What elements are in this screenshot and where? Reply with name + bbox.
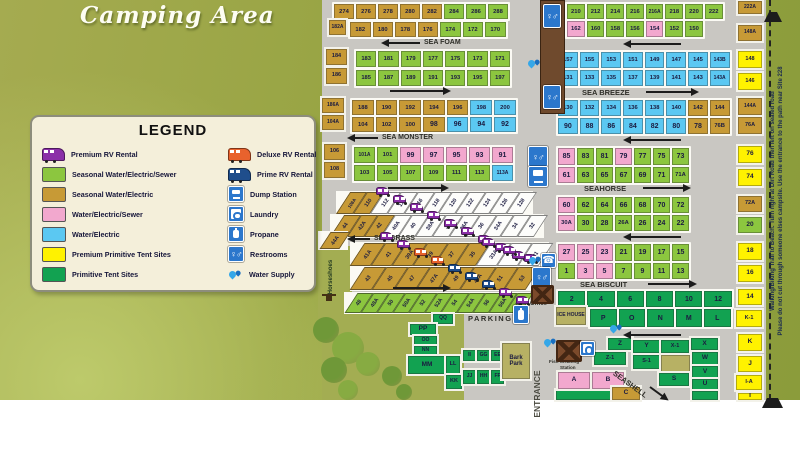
drops-icon [528,252,539,265]
legend-item: Laundry [228,204,312,224]
site-189: 189 [401,70,421,86]
legend-item: Seasonal Water/Electric/Sewer [42,164,212,184]
legend-item-label: Prime RV Rental [257,170,313,179]
rv-icon [410,203,423,211]
site-type-swatch [42,187,66,202]
site-160: 160 [587,21,605,37]
site-181: 181 [378,51,398,67]
site-113A: 113A [492,165,513,181]
site-216A: 216A [646,4,664,19]
site-278: 278 [378,4,398,19]
site-142: 142 [688,100,708,116]
site-156: 156 [626,21,644,37]
drops-icon [527,55,541,71]
site-s-1: S-1 [633,355,660,369]
site-77: 77 [634,148,651,165]
site-274: 274 [334,4,354,19]
campground-map: Camping Area LEGEND Premium RV RentalSea… [0,0,800,400]
site-132: 132 [580,100,600,116]
site-22: 22 [672,215,689,231]
tree-icon [382,366,402,386]
restrooms-icon: ♀♂ [543,4,561,28]
site-93: 93 [469,147,490,163]
trail-note: Walking/Biking Trail to Beach. Turn righ… [769,33,785,369]
trailarrow-icon [764,2,782,22]
legend-item: Premium RV Rental [42,144,212,164]
legend-item: ♀♂Restrooms [228,244,312,264]
rv-icon [482,238,495,246]
site-193: 193 [445,70,465,86]
site-82: 82 [645,118,665,134]
direction-arrow [643,187,688,189]
site-198: 198 [470,100,492,115]
site-183: 183 [356,51,376,67]
legend-item-label: Water/Electric/Sewer [72,210,143,219]
site-nn: NN [414,346,437,355]
site-68: 68 [634,197,651,213]
site-101: 101 [377,147,398,163]
drops-icon [609,320,621,334]
direction-arrow [626,43,681,45]
legend-item: Seasonal Water/Electric [42,184,212,204]
site-block [692,391,718,400]
site-row: 131133135137139141143143A [556,68,732,88]
trail-note-line: Walking/Biking Trail to Beach. Turn righ… [769,33,777,369]
site-61: 61 [558,167,575,183]
site-v: V [692,366,718,378]
site-z-1: Z-1 [594,352,626,365]
site-103: 103 [354,165,375,181]
laundry-icon [580,341,595,356]
site-76a: 76A [738,117,762,134]
site-13: 13 [672,263,689,279]
site-11: 11 [653,263,670,279]
site-M: M [676,309,703,327]
rv-icon [376,187,389,195]
office-icon [531,285,554,304]
legend-title: LEGEND [32,122,314,139]
site-185: 185 [356,70,376,86]
legend-item: Propane [228,224,312,244]
site-195: 195 [467,70,487,86]
rv-icon [499,288,512,296]
picnic-icon [322,292,336,302]
site-113: 113 [469,165,490,181]
site-u: U [692,379,718,390]
legend-right-column: Deluxe RV RentalPrime RV RentalDump Stat… [228,144,312,284]
site-75: 75 [653,148,670,165]
water-supply-icon [228,266,243,282]
site-type-swatch [42,267,66,282]
site-138: 138 [645,100,665,116]
site-111: 111 [446,165,467,181]
site-178: 178 [395,22,416,37]
site-92: 92 [494,117,516,132]
site-99: 99 [400,147,421,163]
site-175: 175 [445,51,465,67]
restrooms-icon: ♀♂ [543,85,561,109]
site-row: 9088868482807876B [556,116,732,136]
site-150: 150 [685,21,703,37]
site-64: 64 [596,197,613,213]
site-78: 78 [688,118,708,134]
site-76B: 76B [710,118,730,134]
site-6: 6 [617,291,644,307]
direction-arrow [350,238,370,240]
site-176: 176 [418,22,439,37]
restrooms-icon: ♀♂ [528,146,548,167]
site-27: 27 [558,244,575,261]
site-16: 16 [738,265,762,282]
site-149: 149 [645,52,665,68]
site-9: 9 [634,263,651,279]
site-216: 216 [626,4,644,19]
site-76: 76 [738,146,762,163]
site-bark-park: Bark Park [502,343,530,379]
site-26: 26 [634,215,651,231]
site-139: 139 [645,70,665,86]
road-label-station: Station [560,365,576,370]
legend-item-label: Water/Electric [72,230,120,239]
site-30A: 30A [558,215,575,231]
site-184: 184 [326,49,347,65]
site-63: 63 [577,167,594,183]
site-276: 276 [356,4,376,19]
site-row: 185187189191193195197 [354,68,512,88]
direction-arrow [646,91,696,93]
site-row: 24681012 [556,289,734,309]
site-170: 170 [485,22,506,37]
rv-icon [427,211,440,219]
site-91: 91 [492,147,513,163]
site-141: 141 [666,70,686,86]
legend-item-label: Propane [250,230,279,239]
legend-item-label: Water Supply [249,270,295,279]
site-row: 274276278280282284286288 [332,2,510,21]
site-85: 85 [558,148,575,165]
site-177: 177 [423,51,443,67]
site-69: 69 [634,167,651,183]
site-ll: LL [446,356,460,374]
site-s: S [659,373,689,386]
site-147: 147 [666,52,686,68]
site-140: 140 [666,100,686,116]
site-i-a: I-A [736,375,762,390]
legend-item: Water/Electric [42,224,212,244]
site-18: 18 [738,243,762,260]
propane-icon [228,226,244,242]
site-8: 8 [646,291,673,307]
site-row: 85838179777573 [556,146,691,167]
site-154: 154 [646,21,664,37]
road-label-sea-biscuit: SEA BISCUIT [580,280,627,289]
site-row: 103105107109111113113A [352,163,515,183]
rv-icon [461,227,474,235]
rv-icon [397,240,410,248]
site-62: 62 [577,197,594,213]
rv-icon [516,296,529,304]
road-label-parking: PARKING [468,314,513,323]
legend: LEGEND Premium RV RentalSeasonal Water/E… [30,115,316,292]
site-182: 182 [350,22,371,37]
site-73: 73 [672,148,689,165]
site-187: 187 [378,70,398,86]
rv-icon [42,148,65,161]
site-194: 194 [423,100,445,115]
drops-icon [543,334,554,347]
site-134: 134 [601,100,621,116]
site-84: 84 [623,118,643,134]
road-label-seahorse: SEAHORSE [584,184,626,193]
site-186: 186 [326,68,347,84]
site-type-swatch [42,227,66,242]
site-108: 108 [324,162,345,178]
site-19: 19 [634,244,651,261]
site-96: 96 [447,117,469,132]
site-86: 86 [601,118,621,134]
site-24: 24 [653,215,670,231]
site-72a: 72A [738,196,762,212]
site-10: 10 [675,291,702,307]
diagonal-site-row: 108A110112114116118120122124126128 [336,191,533,215]
site-block [661,355,690,372]
site-109: 109 [423,165,444,181]
rv-icon [482,280,495,288]
site-190: 190 [376,100,398,115]
site-k-1: K-1 [736,310,762,327]
site-148: 148 [738,51,762,68]
direction-arrow [626,334,681,336]
direction-arrow [388,187,446,189]
legend-item-label: Primitive Tent Sites [72,270,138,279]
site-type-swatch [42,247,66,262]
legend-item-label: Premium Primitive Tent Sites [72,250,171,259]
site-jj: JJ [463,370,476,384]
site-135: 135 [601,70,621,86]
site-104a: 104A [322,115,344,130]
site-162: 162 [567,21,585,37]
site-row: 157155153151149147145143B [556,50,732,70]
site-row: 61636567697171A [556,165,691,185]
site-67: 67 [615,167,632,183]
site-191: 191 [423,70,443,86]
direction-arrow [648,283,694,285]
direction-arrow [393,287,448,289]
rv-icon [448,264,461,272]
dump-icon [228,186,244,202]
tree-icon [321,357,347,383]
rv-icon [431,256,444,264]
legend-item: Primitive Tent Sites [42,264,212,284]
site-74: 74 [738,169,762,186]
site-2: 2 [558,291,585,307]
site-row: 135791113 [556,261,691,281]
site-25: 25 [577,244,594,261]
site-O: O [619,309,646,327]
trail-note-line: Please do not cut through someone elses … [777,33,785,369]
legend-item: Premium Primitive Tent Sites [42,244,212,264]
tree-icon [356,352,380,376]
propane-icon [513,305,529,324]
restrooms-icon: ♀♂ [228,246,244,262]
rv-icon [444,219,457,227]
site-hh: HH [477,370,490,384]
site-row: 10410210098969492 [350,115,518,134]
site-171: 171 [490,51,510,67]
site-row: 182180178176174172170 [348,20,508,39]
phone-icon: ☎ [541,253,556,268]
legend-item-label: Deluxe RV Rental [257,150,316,159]
site-155: 155 [580,52,600,68]
site-x: X [691,338,718,350]
site-20: 20 [738,217,762,233]
site-7: 7 [615,263,632,279]
site-105: 105 [377,165,398,181]
site-107: 107 [400,165,421,181]
site-186a: 186A [322,98,344,113]
site-90: 90 [558,118,578,134]
rv-icon [393,195,406,203]
site-80: 80 [666,118,686,134]
legend-item-label: Seasonal Water/Electric/Sewer [72,170,176,179]
site-151: 151 [623,52,643,68]
site-220: 220 [685,4,703,19]
site-72: 72 [672,197,689,213]
site-66: 66 [615,197,632,213]
site-row: 101A1019997959391 [352,145,515,165]
site-174: 174 [440,22,461,37]
site-kk: KK [446,375,462,389]
site-143A: 143A [710,70,730,86]
site-65: 65 [596,167,613,183]
rv-icon [503,246,516,254]
site-j: J [738,356,762,372]
site-286: 286 [466,4,486,19]
legend-item: Water/Electric/Sewer [42,204,212,224]
site-222a: 222A [738,1,762,14]
legend-item-label: Restrooms [250,250,288,259]
site-gg: GG [477,350,490,361]
site-row: 30A302826A262422 [556,213,691,233]
site-3: 3 [577,263,594,279]
site-79: 79 [615,148,632,165]
site-28: 28 [596,215,613,231]
legend-item: Prime RV Rental [228,164,312,184]
site-y: Y [633,340,660,353]
site-102: 102 [376,117,398,132]
site-type-swatch [42,207,66,222]
restrooms-icon: ♀♂ [532,267,551,287]
site-98: 98 [423,117,445,132]
site-222: 222 [705,4,723,19]
site-ice-house: ICE HOUSE [556,307,586,325]
site-row: 130132134136138140142144 [556,98,732,118]
site-12: 12 [704,291,731,307]
site-200: 200 [494,100,516,115]
rv-icon [414,248,427,256]
site-21: 21 [615,244,632,261]
site-N: N [647,309,674,327]
legend-item: Water Supply [228,264,312,284]
site-row: 162160158156154152150 [565,19,705,39]
site-w: W [692,352,718,365]
road-label-entrance: ENTRANCE [532,338,542,450]
site-z: Z [608,338,632,350]
site-192: 192 [399,100,421,115]
site-qq: QQ [433,314,453,324]
site-212: 212 [587,4,605,19]
site-152: 152 [665,21,683,37]
site-15: 15 [672,244,689,261]
site-145: 145 [688,52,708,68]
site-182a: 182A [329,20,346,35]
site-70: 70 [653,197,670,213]
legend-item: Dump Station [228,184,312,204]
site-83: 83 [577,148,594,165]
site-143B: 143B [710,52,730,68]
site-1: 1 [558,263,575,279]
rv-icon [228,148,251,161]
site-218: 218 [665,4,683,19]
site-196: 196 [447,100,469,115]
site-14: 14 [738,289,762,305]
site-280: 280 [400,4,420,19]
site-17: 17 [653,244,670,261]
site-197: 197 [490,70,510,86]
trailarrow-icon [762,382,783,408]
site-104: 104 [352,117,374,132]
site-5: 5 [596,263,613,279]
site-26A: 26A [615,215,632,231]
dump-icon [528,166,548,187]
site-284: 284 [444,4,464,19]
tree-icon [338,380,358,400]
site-95: 95 [446,147,467,163]
fish-icon [556,340,582,362]
site-144: 144 [710,100,730,116]
site-210: 210 [567,4,585,19]
site-row: 183181179177175173171 [354,49,512,69]
site-L: L [704,309,731,327]
legend-item-label: Dump Station [250,190,297,199]
site-106: 106 [324,144,345,160]
direction-arrow [626,236,681,238]
rv-icon [465,272,478,280]
page-title: Camping Area [80,2,275,29]
site-60: 60 [558,197,575,213]
site-k: K [738,334,762,351]
rv-icon [228,168,251,181]
site-pp: PP [410,324,436,335]
site-ii: II [463,350,476,361]
direction-arrow [384,42,420,44]
site-81: 81 [596,148,613,165]
site-a: A [558,372,590,389]
site-136: 136 [623,100,643,116]
site-88: 88 [580,118,600,134]
site-172: 172 [463,22,484,37]
laundry-icon [228,206,244,222]
site-101A: 101A [354,147,375,163]
site-mm: MM [408,356,446,374]
site-153: 153 [601,52,621,68]
legend-item-label: Seasonal Water/Electric [72,190,153,199]
site-97: 97 [423,147,444,163]
direction-arrow [390,90,448,92]
legend-left-column: Premium RV RentalSeasonal Water/Electric… [42,144,212,284]
site-180: 180 [373,22,394,37]
road-label-sea-monster: SEA MONSTER [382,134,433,141]
